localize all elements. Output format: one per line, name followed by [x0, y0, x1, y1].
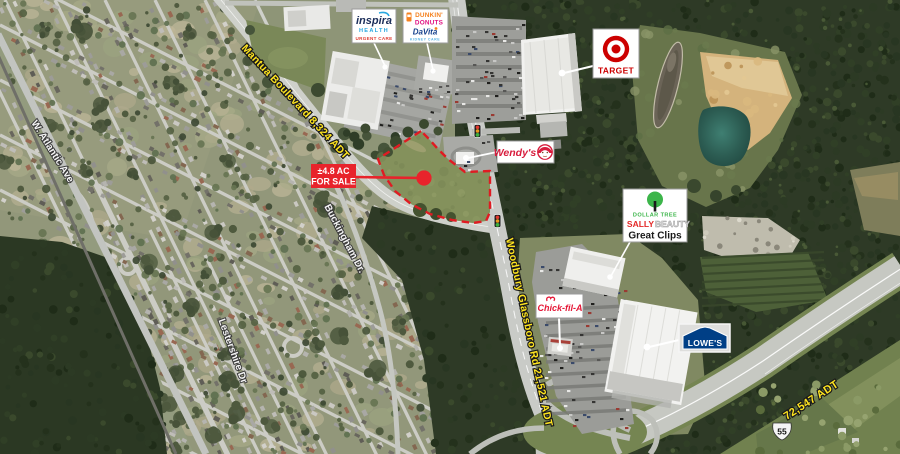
- svg-text:DUNKIN': DUNKIN': [415, 12, 443, 19]
- svg-text:55: 55: [777, 427, 787, 437]
- svg-text:±4.8 AC: ±4.8 AC: [318, 166, 351, 176]
- svg-text:TARGET: TARGET: [598, 66, 635, 76]
- svg-text:LOWE'S: LOWE'S: [688, 338, 723, 348]
- svg-text:DOLLAR TREE: DOLLAR TREE: [633, 213, 677, 219]
- svg-text:Wendy's: Wendy's: [494, 147, 537, 159]
- svg-text:inspira: inspira: [356, 15, 392, 27]
- svg-text:BEAUTY: BEAUTY: [655, 219, 690, 229]
- svg-text:HEALTH: HEALTH: [359, 28, 389, 34]
- svg-text:FOR SALE: FOR SALE: [311, 177, 356, 187]
- svg-text:KIDNEY CARE: KIDNEY CARE: [410, 38, 440, 42]
- svg-text:URGENT CARE: URGENT CARE: [356, 36, 393, 41]
- svg-text:Chick-fil-A: Chick-fil-A: [538, 303, 583, 313]
- svg-text:DONUTS: DONUTS: [415, 20, 444, 27]
- svg-text:DaVita: DaVita: [413, 28, 438, 37]
- svg-text:Great Clips: Great Clips: [628, 231, 682, 242]
- svg-text:SALLY: SALLY: [627, 219, 654, 229]
